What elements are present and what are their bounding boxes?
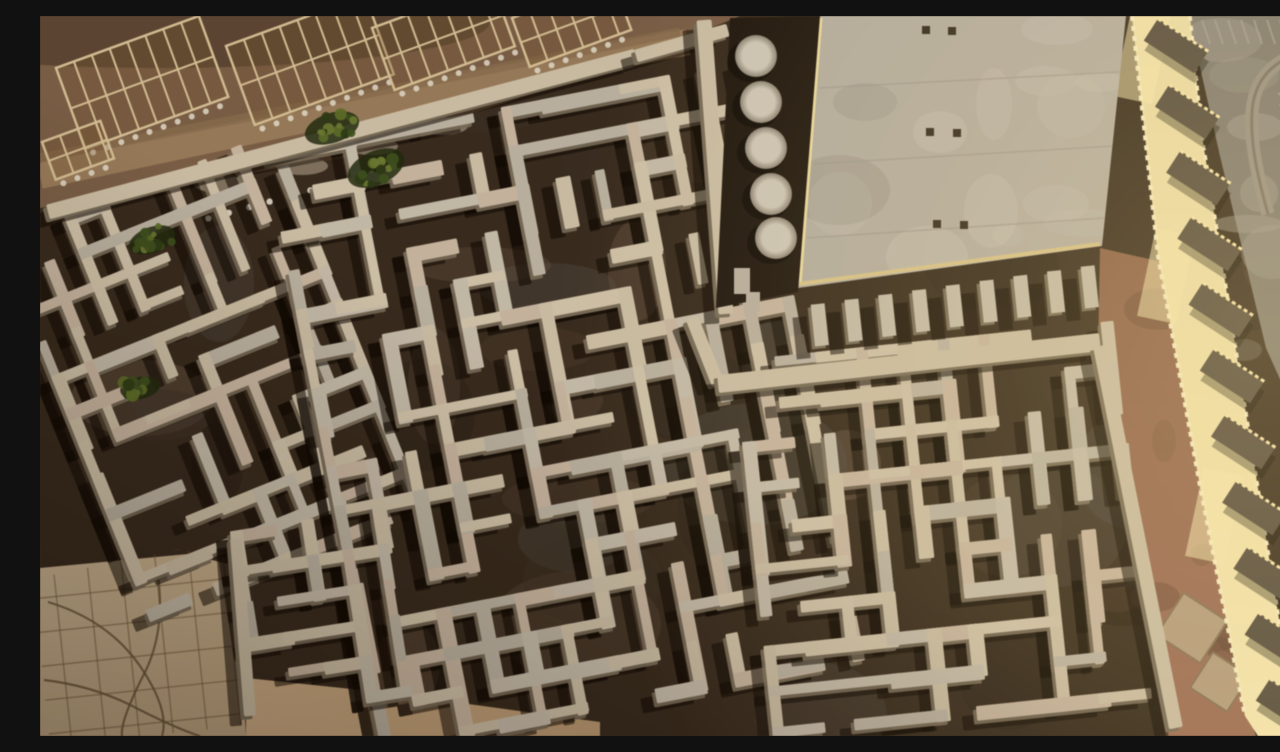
aerial-photo-canvas [40, 16, 1280, 736]
aerial-photo [40, 16, 1280, 736]
lighting-overlay [40, 16, 1280, 736]
